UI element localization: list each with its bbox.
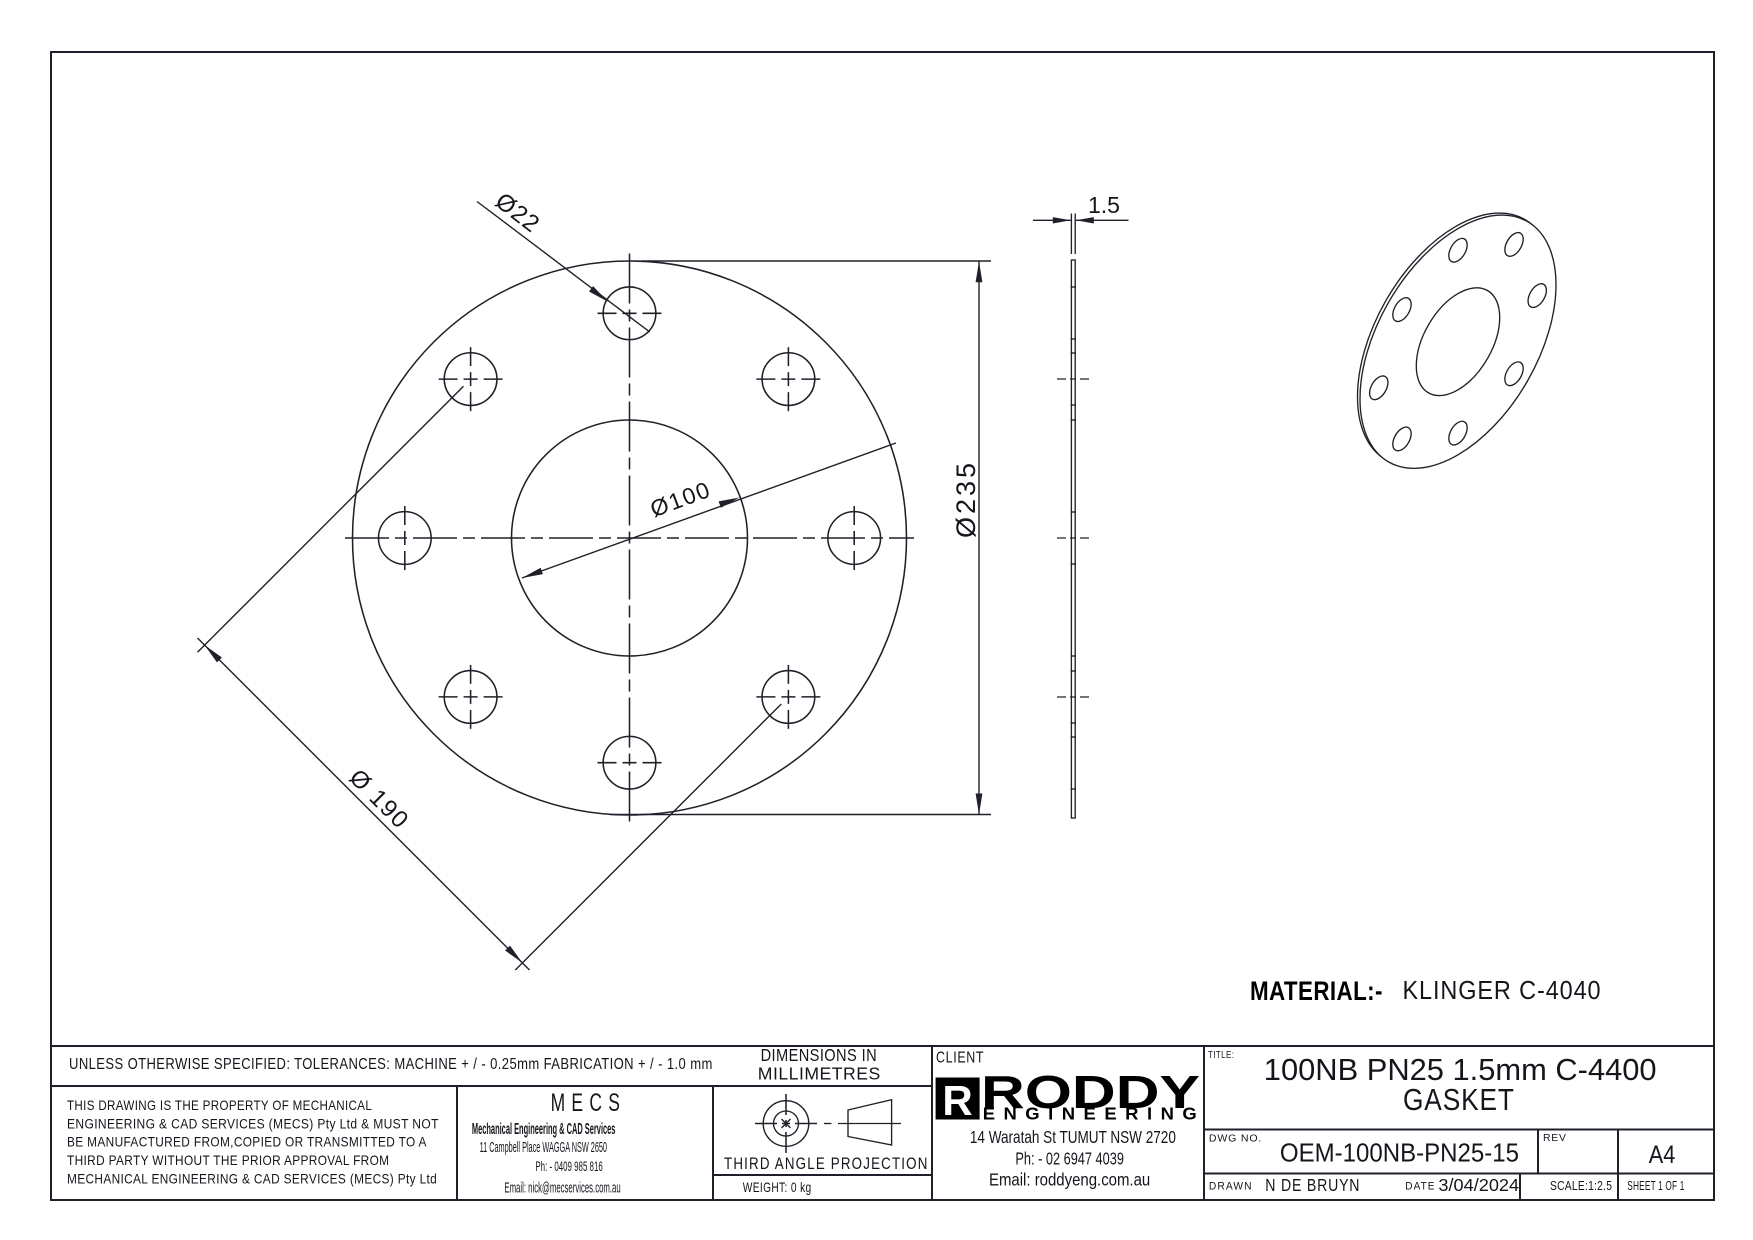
svg-text:3/04/2024: 3/04/2024 (1438, 1175, 1519, 1195)
svg-text:DWG NO.: DWG NO. (1209, 1133, 1262, 1145)
svg-text:DATE: DATE (1405, 1180, 1435, 1193)
svg-text:GASKET: GASKET (1403, 1083, 1515, 1117)
svg-text:THIS DRAWING IS THE PROPERTY O: THIS DRAWING IS THE PROPERTY OF MECHANIC… (67, 1098, 372, 1113)
svg-text:Ø235: Ø235 (951, 460, 981, 538)
svg-text:THIRD PARTY WITHOUT THE PRIOR: THIRD PARTY WITHOUT THE PRIOR APPROVAL F… (67, 1153, 389, 1168)
svg-text:Ø22: Ø22 (490, 188, 545, 239)
svg-text:Ph: - 0409 985 816: Ph: - 0409 985 816 (535, 1160, 602, 1175)
svg-text:1.5: 1.5 (1088, 192, 1120, 218)
svg-text:Email: roddyeng.com.au: Email: roddyeng.com.au (989, 1171, 1150, 1190)
svg-text:BE MANUFACTURED FROM,COPIED OR: BE MANUFACTURED FROM,COPIED OR TRANSMITT… (67, 1135, 427, 1150)
svg-text:14 Waratah St TUMUT NSW 2720: 14 Waratah St TUMUT NSW 2720 (970, 1129, 1176, 1148)
svg-text:MECS: MECS (551, 1088, 627, 1117)
svg-text:Ø 190: Ø 190 (344, 764, 415, 835)
svg-text:Mechanical Engineering & CAD S: Mechanical Engineering & CAD Services (472, 1120, 616, 1138)
svg-text:11 Campbell Place WAGGA NSW 26: 11 Campbell Place WAGGA NSW 2650 (480, 1139, 608, 1156)
svg-text:ENGINEERING & CAD SERVICES (ME: ENGINEERING & CAD SERVICES (MECS) Pty Lt… (67, 1116, 439, 1132)
svg-text:SHEET 1 OF 1: SHEET 1 OF 1 (1627, 1179, 1684, 1193)
svg-text:100NB PN25 1.5mm C-4400: 100NB PN25 1.5mm C-4400 (1264, 1052, 1657, 1087)
svg-text:UNLESS OTHERWISE SPECIFIED: TO: UNLESS OTHERWISE SPECIFIED: TOLERANCES: … (69, 1056, 713, 1074)
svg-text:R: R (942, 1077, 972, 1124)
svg-text:OEM-100NB-PN25-15: OEM-100NB-PN25-15 (1280, 1139, 1519, 1168)
svg-text:TITLE:: TITLE: (1208, 1049, 1234, 1060)
svg-text:DRAWN: DRAWN (1209, 1180, 1253, 1193)
svg-text:MATERIAL:-: MATERIAL:- (1250, 977, 1383, 1006)
svg-text:WEIGHT: 0 kg: WEIGHT: 0 kg (743, 1180, 812, 1196)
svg-text:Ø100: Ø100 (647, 476, 715, 522)
svg-text:A4: A4 (1649, 1141, 1675, 1169)
svg-text:Ph: - 02 6947 4039: Ph: - 02 6947 4039 (1015, 1150, 1124, 1170)
svg-text:MECHANICAL ENGINEERING & CAD S: MECHANICAL ENGINEERING & CAD SERVICES (M… (67, 1172, 437, 1187)
svg-text:KLINGER C-4040: KLINGER C-4040 (1403, 977, 1602, 1005)
svg-text:Email: nick@mecservices.com.au: Email: nick@mecservices.com.au (504, 1180, 620, 1196)
svg-text:N DE BRUYN: N DE BRUYN (1265, 1177, 1360, 1196)
svg-text:REV: REV (1543, 1133, 1567, 1144)
svg-text:CLIENT: CLIENT (936, 1048, 984, 1066)
svg-text:SCALE:1:2.5: SCALE:1:2.5 (1550, 1179, 1612, 1193)
svg-text:MILLIMETRES: MILLIMETRES (758, 1063, 881, 1083)
svg-text:ENGINEERING: ENGINEERING (983, 1104, 1206, 1123)
svg-text:THIRD ANGLE PROJECTION: THIRD ANGLE PROJECTION (724, 1155, 929, 1174)
